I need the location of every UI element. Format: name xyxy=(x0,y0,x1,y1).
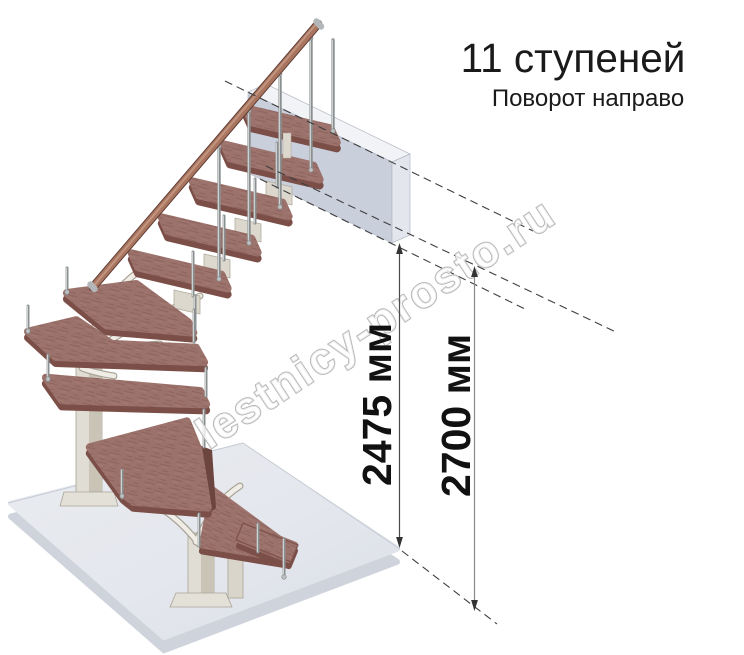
svg-text:2475 мм: 2475 мм xyxy=(354,323,400,486)
svg-text:Поворот направо: Поворот направо xyxy=(492,85,684,112)
svg-text:2700 мм: 2700 мм xyxy=(433,334,479,497)
svg-text:11 ступеней: 11 ступеней xyxy=(461,35,686,81)
